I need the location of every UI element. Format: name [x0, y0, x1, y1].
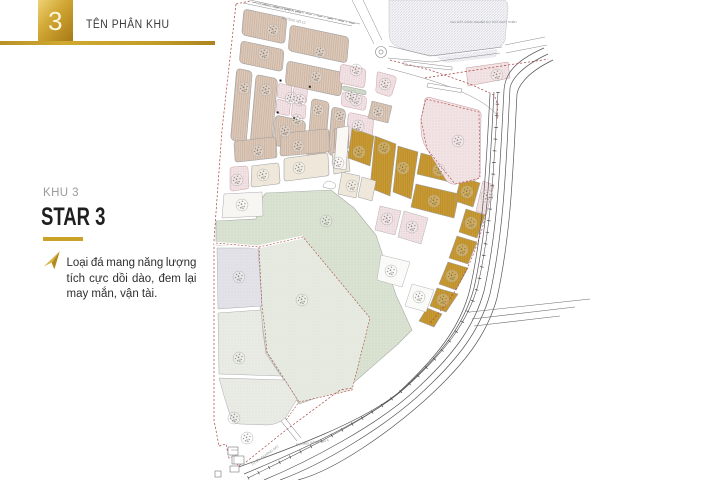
svg-text:KHU ĐẤT CÔNG NGHIỆP DỰ TRỮ PHÁ: KHU ĐẤT CÔNG NGHIỆP DỰ TRỮ PHÁT TRIỂN [450, 19, 517, 24]
svg-text:TUYẾN ĐƯỜNG SẮT: TUYẾN ĐƯỜNG SẮT [250, 444, 280, 467]
